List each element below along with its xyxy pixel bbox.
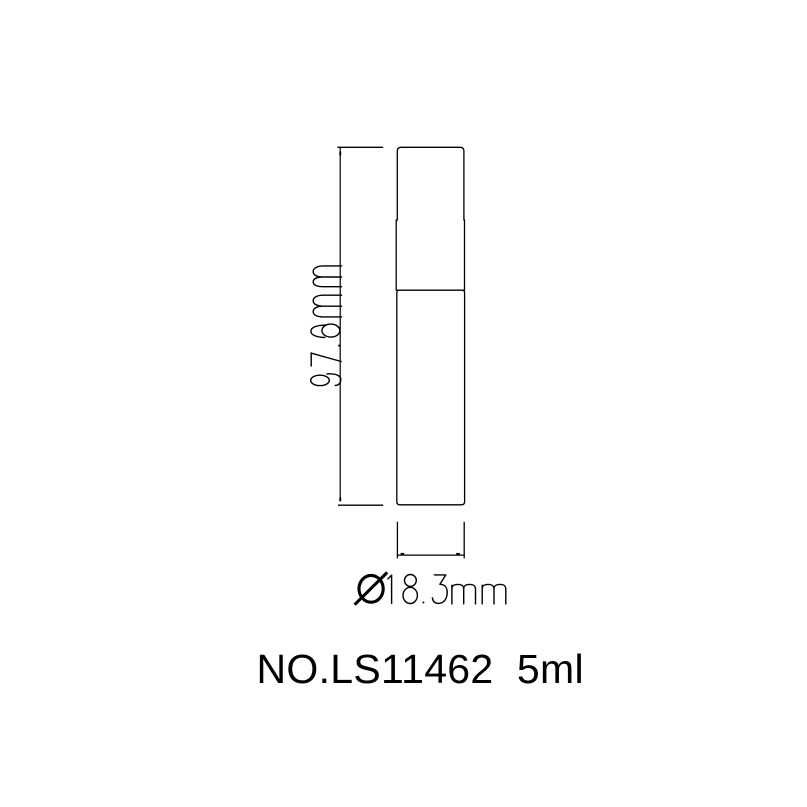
svg-text:NO.LS11462 5ml: NO.LS11462 5ml	[257, 646, 584, 692]
